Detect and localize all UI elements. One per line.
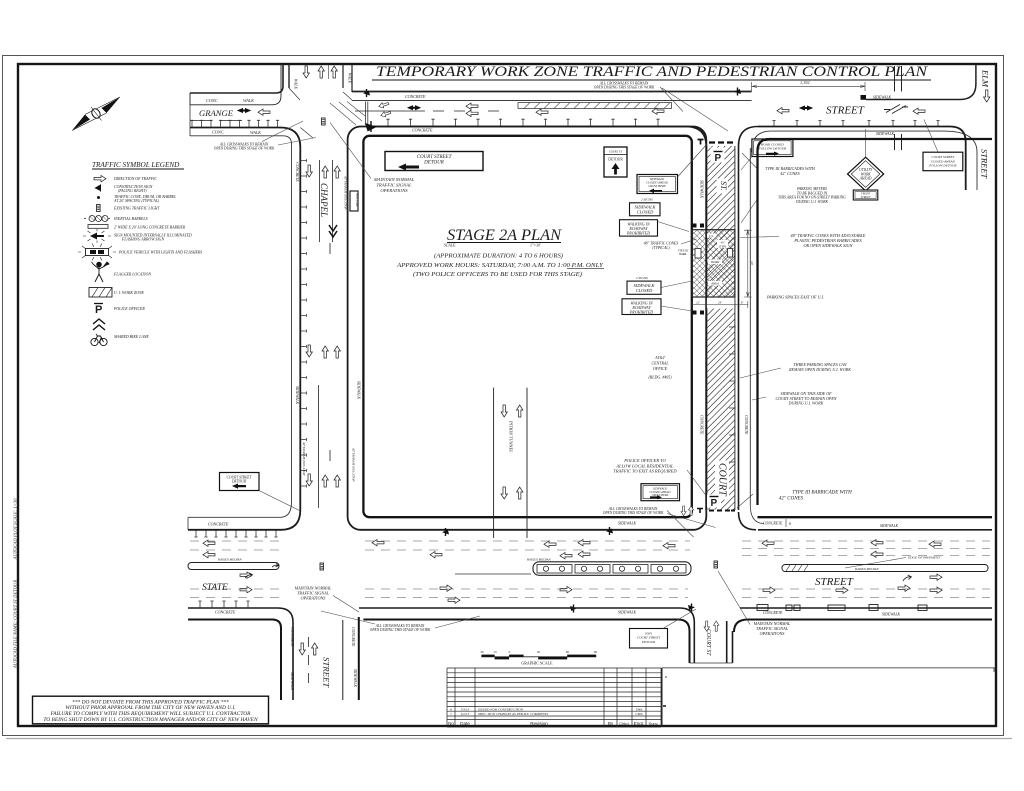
svg-text:SIDEWALK: SIDEWALK [353,669,357,688]
svg-text:ALLOW LOCAL RESIDENTIAL: ALLOW LOCAL RESIDENTIAL [615,463,674,468]
svg-text:CENTRAL: CENTRAL [651,361,669,366]
svg-text:30: 30 [480,650,484,654]
svg-text:CROSS HERE: CROSS HERE [648,184,666,188]
svg-text:RAISED MEDIAN: RAISED MEDIAN [217,558,243,562]
svg-text:SIDEWALK: SIDEWALK [618,522,637,526]
svg-text:WALK: WALK [250,130,261,135]
svg-text:(TYP): (TYP) [719,244,726,248]
svg-text:AHEAD: AHEAD [859,177,872,181]
svg-text:Revision: Revision [530,721,548,726]
svg-text:OPEN DURING THIS STAGE OF WORK: OPEN DURING THIS STAGE OF WORK [214,147,275,151]
svg-text:SIDEWALK: SIDEWALK [880,524,899,528]
svg-text:EDGE OF PAVEMENT: EDGE OF PAVEMENT [907,556,941,560]
svg-text:CONCRETE: CONCRETE [351,627,355,647]
svg-text:42'' CONES: 42'' CONES [780,171,799,176]
svg-text:OPERATIONS: OPERATIONS [380,188,408,193]
svg-text:GRAPHIC SCALE: GRAPHIC SCALE [521,661,553,666]
svg-text:OFFICE: OFFICE [653,366,668,371]
svg-text:SCALE:: SCALE: [444,244,456,248]
svg-text:SHARED BIKE LANE: SHARED BIKE LANE [114,335,149,339]
svg-text:CONCRETE: CONCRETE [405,94,426,99]
svg-text:DETOUR: DETOUR [231,480,247,484]
svg-text:90: 90 [594,650,598,654]
svg-text:BUS STOP: BUS STOP [355,194,359,208]
svg-text:EXISTING TRAFFIC LIGHT: EXISTING TRAFFIC LIGHT [113,207,160,211]
svg-text:CONCRETE: CONCRETE [215,610,236,615]
svg-text:(TWO POLICE OFFICERS TO BE USE: (TWO POLICE OFFICERS TO BE USED FOR THIS… [413,271,582,278]
svg-text:TO BEING SHUT DOWN BY U.I. CON: TO BEING SHUT DOWN BY U.I. CONSTRUCTION … [43,717,258,723]
svg-text:U. I. WORK ZONE: U. I. WORK ZONE [114,291,145,295]
svg-text:AT TRANSIT BUS STOP: AT TRANSIT BUS STOP [352,447,356,482]
svg-text:FLAGGER LOCATION: FLAGGER LOCATION [113,273,151,277]
svg-text:DETOUR: DETOUR [423,161,444,166]
svg-text:COURT ST: COURT ST [609,151,623,154]
svg-text:SIDEWALK: SIDEWALK [882,613,901,617]
svg-text:RAISED MEDIAN: RAISED MEDIAN [854,567,880,571]
svg-text:STREET: STREET [322,657,332,688]
svg-text:STREET: STREET [980,149,990,180]
svg-text:SIDEWALK: SIDEWALK [873,95,892,99]
svg-text:DURING U.I. WORK: DURING U.I. WORK [795,200,828,204]
svg-text:U.I.: U.I. [709,234,714,238]
svg-text:OR OPEN SIDEWALK SIGN: OR OPEN SIDEWALK SIGN [804,243,853,248]
svg-text:2 SIGNS: 2 SIGNS [636,276,648,280]
svg-text:OPERATIONS: OPERATIONS [301,596,327,601]
svg-text:15: 15 [493,650,497,654]
svg-text:WALK: WALK [294,79,299,90]
svg-text:FOLLOW DETOUR: FOLLOW DETOUR [928,164,956,168]
svg-text:TRAFFIC SYMBOL LEGEND: TRAFFIC SYMBOL LEGEND [92,161,180,169]
svg-text:COURT: COURT [717,463,728,497]
svg-text:OPEN DURING THIS STAGE OF WORK: OPEN DURING THIS STAGE OF WORK [603,511,664,515]
svg-text:COURT STREET: COURT STREET [417,155,453,160]
svg-text:TRAFFIC TO EXIT AS REQUIRED: TRAFFIC TO EXIT AS REQUIRED [613,469,677,474]
svg-text:35: 35 [788,522,792,526]
svg-text:SIDEWALK: SIDEWALK [290,672,294,691]
svg-text:APPROVED WORK HOURS: SATURDAY,: APPROVED WORK HOURS: SATURDAY, 7:00 A.M.… [396,263,604,269]
svg-text:DETOUR: DETOUR [641,640,656,644]
svg-text:4/2/13: 4/2/13 [461,712,470,716]
svg-text:ST.: ST. [719,181,728,191]
svg-text:PITKIN TUNNEL: PITKIN TUNNEL [509,420,514,453]
svg-text:8: 8 [450,707,452,711]
svg-text:CLOSED: CLOSED [636,288,653,293]
svg-text:FOLLOW DETOUR: FOLLOW DETOUR [758,146,788,150]
svg-text:PARKING SPACES EAST OF U.I.: PARKING SPACES EAST OF U.I. [766,295,824,300]
svg-text:AT 20' SPACING (TYPICAL): AT 20' SPACING (TYPICAL) [113,199,160,203]
svg-text:CONCRETE: CONCRETE [700,415,704,435]
svg-text:CONCRETE: CONCRETE [763,611,783,615]
svg-text:Supv.: Supv. [649,721,659,726]
svg-text:STREET: STREET [826,105,865,117]
svg-text:AREA: AREA [710,282,719,286]
svg-text:POLICE OFFICER TO: POLICE OFFICER TO [623,458,666,463]
svg-text:CMA: CMA [635,712,643,716]
svg-text:STREET: STREET [815,576,854,588]
svg-text:WALK: WALK [243,98,254,103]
svg-text:30: 30 [537,650,541,654]
svg-text:5/3/13: 5/3/13 [461,707,470,711]
svg-text:CONCRETE: CONCRETE [412,128,433,133]
svg-text:DETOUR: DETOUR [608,158,623,162]
svg-text:AT TRANSIT BUS STOP: AT TRANSIT BUS STOP [302,441,306,476]
svg-text:42'' CONES: 42'' CONES [779,497,804,502]
svg-text:WORK: WORK [711,260,721,264]
svg-text:REMAIN OPEN DURING U.I. WORK: REMAIN OPEN DURING U.I. WORK [788,367,851,372]
svg-text:OPEN DURING THIS STAGE OF WORK: OPEN DURING THIS STAGE OF WORK [594,86,655,90]
svg-text:24': 24' [718,300,722,304]
svg-text:CONCRETE: CONCRETE [744,415,748,435]
svg-text:2' WIDE X 20' LONG CONCRETE BA: 2' WIDE X 20' LONG CONCRETE BARRIER [114,226,186,230]
svg-text:CLOSED: CLOSED [637,210,654,215]
svg-text:TRAFFIC SIGNAL: TRAFFIC SIGNAL [376,183,412,188]
svg-text:GRANGE: GRANGE [199,108,234,118]
svg-text:POLICE OFFICER: POLICE OFFICER [113,307,145,311]
svg-text:DIRECTION OF TRAFFIC: DIRECTION OF TRAFFIC [113,177,157,181]
svg-text:ELM: ELM [981,69,991,88]
svg-text:By: By [608,721,614,726]
svg-text:(BLDG. #405): (BLDG. #405) [648,375,672,380]
svg-text:FLASHING ARROW SIGN: FLASHING ARROW SIGN [121,237,164,241]
svg-text:MAINTAIN NORMAL: MAINTAIN NORMAL [373,177,415,182]
svg-text:P: P [711,498,718,509]
svg-text:PROHIBITED: PROHIBITED [629,309,653,314]
svg-text:DURING U.I. WORK: DURING U.I. WORK [788,401,824,406]
svg-text:(APPROXIMATE DURATION: 4 TO 6: (APPROXIMATE DURATION: 4 TO 6 HOURS) [434,253,563,260]
svg-text:POLICE VEHICLE WITH LIGHTS AND: POLICE VEHICLE WITH LIGHTS AND FLASHERS [118,251,202,255]
svg-text:STREET: STREET [861,196,871,199]
svg-text:ISSUED FOR CONSTRUCTION: ISSUED FOR CONSTRUCTION [477,707,524,711]
svg-text:INERTIAL BARRELS: INERTIAL BARRELS [113,217,148,221]
svg-text:COURT ST: COURT ST [705,629,711,656]
svg-text:AUTOCAD FILE NAME: COURT ST DE: AUTOCAD FILE NAME: COURT ST DETOUR [13,580,18,670]
svg-text:RAISED MEDIAN: RAISED MEDIAN [526,558,552,562]
svg-text:7: 7 [450,712,452,716]
svg-text:CONC.: CONC. [212,129,224,134]
svg-text:Engr.: Engr. [634,721,645,726]
svg-text:2 SIGNS: 2 SIGNS [641,198,653,202]
svg-text:CHAPEL: CHAPEL [319,183,329,217]
svg-text:SIDEWALK: SIDEWALK [618,611,637,615]
svg-text:STAGE 2A PLAN: STAGE 2A PLAN [447,227,563,244]
svg-text:60: 60 [566,650,570,654]
svg-text:BARR.: BARR. [679,252,687,256]
svg-text:0: 0 [509,650,511,654]
svg-text:CONCRETE: CONCRETE [295,162,299,182]
svg-text:12': 12' [696,300,700,304]
svg-text:Chkd.: Chkd. [619,721,629,726]
svg-text:Date: Date [460,721,470,726]
svg-text:TMA: TMA [636,707,644,711]
svg-text:8': 8' [741,300,744,304]
svg-text:(FACING RIGHT): (FACING RIGHT) [118,189,147,193]
svg-text:PROHIBITED: PROHIBITED [626,231,650,236]
svg-text:1''=30': 1''=30' [530,244,541,248]
svg-text:TEMPORARY WORK ZONE TRAFFIC AN: TEMPORARY WORK ZONE TRAFFIC AND PEDESTRI… [376,64,928,80]
svg-text:AUTOCAD PLOT SCALE: 1=30: AUTOCAD PLOT SCALE: 1=30 [13,498,18,560]
svg-text:STATE: STATE [202,583,228,593]
svg-text:(TYPICAL): (TYPICAL) [652,246,670,250]
svg-text:OPERATIONS: OPERATIONS [760,631,786,636]
svg-text:MISC. SIGN CHANGES AS PER R.F.: MISC. SIGN CHANGES AS PER R.F. COMMENTS [477,712,549,716]
svg-text:SIDEWALK: SIDEWALK [357,381,361,400]
svg-text:SIDEWALK: SIDEWALK [876,132,895,136]
svg-text:CONCRETE: CONCRETE [763,522,783,526]
svg-text:CONCRETE: CONCRETE [290,627,294,647]
svg-text:OPEN DURING THIS STAGE OF WORK: OPEN DURING THIS STAGE OF WORK [370,628,431,632]
svg-text:WALK: WALK [348,73,353,84]
svg-text:AT&T: AT&T [654,355,666,360]
svg-text:SIDEWALK: SIDEWALK [700,180,704,199]
svg-text:P: P [95,304,102,316]
svg-text:SIDEWALK: SIDEWALK [295,386,299,405]
svg-text:P: P [715,153,722,164]
svg-text:CONCRETE: CONCRETE [208,522,229,527]
svg-text:No: No [448,721,454,726]
svg-text:CONC.: CONC. [206,98,218,103]
svg-text:TYPE III BARRICADE WITH: TYPE III BARRICADE WITH [792,491,852,496]
